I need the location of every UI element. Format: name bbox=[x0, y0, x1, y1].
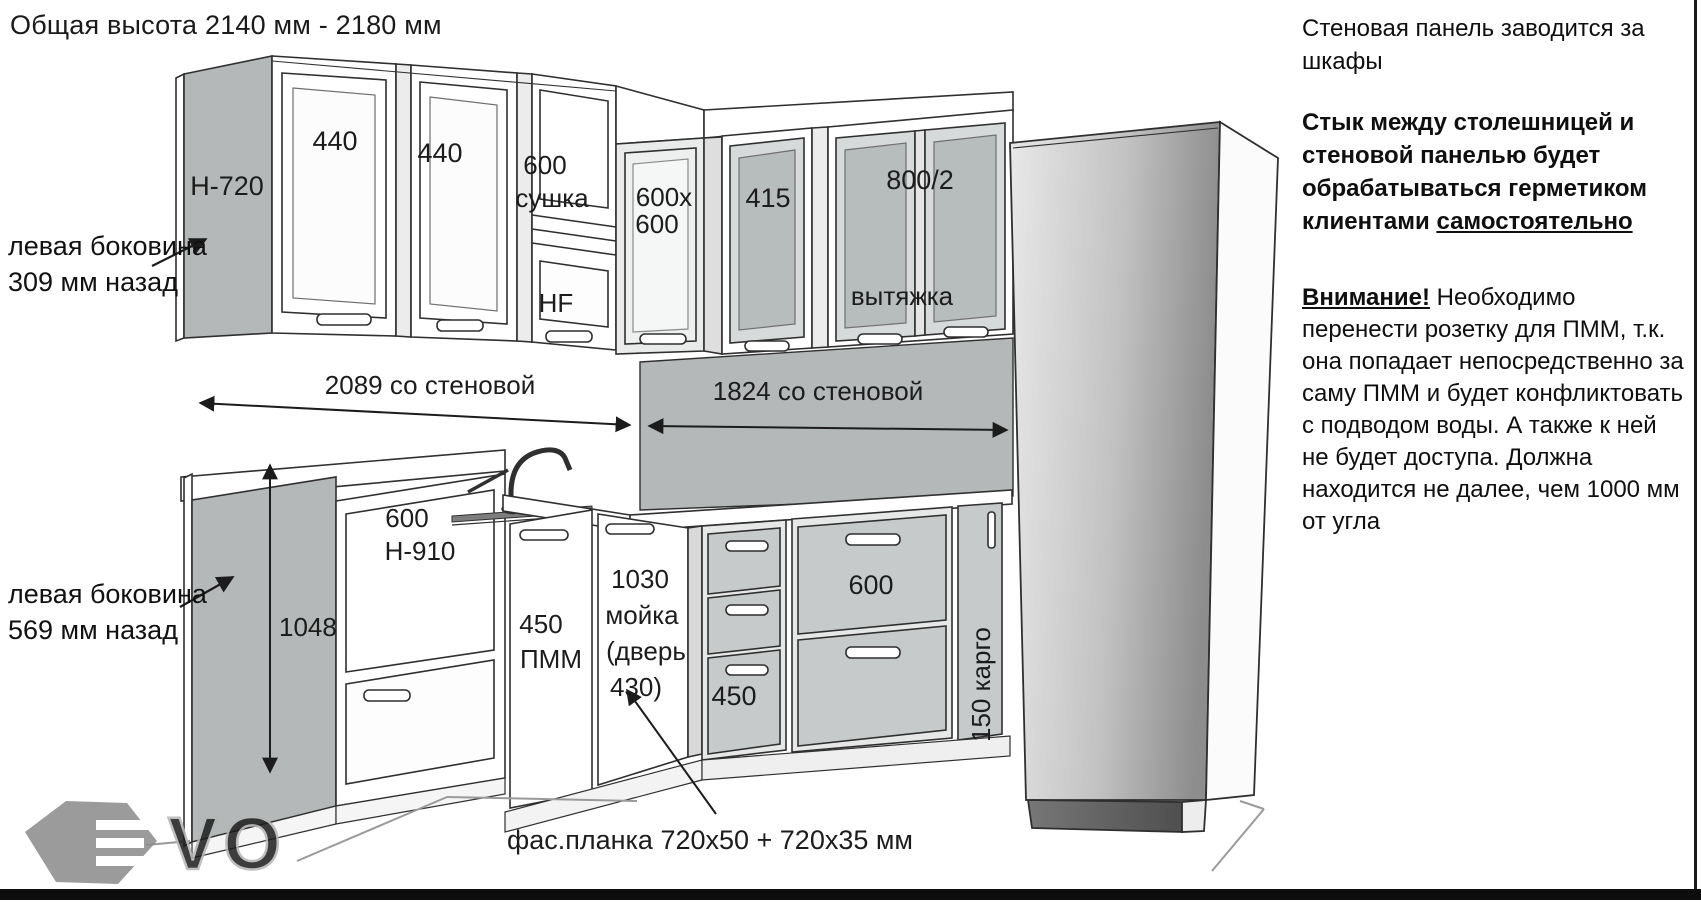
label-hood-cab: 800/2 bbox=[886, 165, 954, 195]
label-tall-size: 600 bbox=[385, 503, 428, 533]
label-hood: вытяжка bbox=[851, 281, 954, 311]
note-warning: Внимание! Необходимо перенести розетку д… bbox=[1302, 282, 1685, 538]
right-border-line bbox=[1694, 0, 1697, 889]
label-cab440-2: 440 bbox=[417, 138, 462, 168]
label-dryer-name: сушка bbox=[515, 183, 589, 213]
callout-side-309-line1: левая боковина bbox=[8, 228, 207, 264]
tall-cabinet bbox=[1010, 122, 1278, 871]
handle bbox=[640, 334, 686, 344]
handle bbox=[726, 605, 768, 615]
label-sink-4: 430) bbox=[610, 672, 662, 702]
label-cab440-1: 440 bbox=[312, 126, 357, 156]
logo-text: VO bbox=[168, 802, 287, 885]
label-corner-2: 600 bbox=[635, 209, 678, 239]
note-joint: Стык между столешницей и стеновой панель… bbox=[1302, 106, 1685, 238]
label-sink-3: (дверь bbox=[606, 636, 686, 666]
base-left-side-panel bbox=[192, 477, 336, 842]
note-warning-body: Необходимо перенести розетку для ПММ, т.… bbox=[1302, 284, 1684, 535]
handle bbox=[846, 647, 900, 658]
callout-side-569: левая боковина 569 мм назад bbox=[8, 576, 207, 648]
handle bbox=[726, 541, 768, 551]
label-dw-name: ПММ bbox=[520, 644, 582, 674]
label-cargo: 150 карго bbox=[966, 627, 996, 742]
label-dw-size: 450 bbox=[519, 609, 562, 639]
wall-panel bbox=[640, 338, 1013, 510]
label-dryer-door: HF bbox=[539, 288, 574, 318]
label-corner-1: 600х bbox=[636, 182, 692, 212]
handle bbox=[520, 530, 568, 540]
handle bbox=[988, 512, 995, 548]
handle bbox=[546, 331, 592, 342]
handle bbox=[858, 334, 902, 344]
tall-cabinet-plinth bbox=[1028, 800, 1182, 832]
callout-side-309: левая боковина 309 мм назад bbox=[8, 228, 207, 300]
notes-column: Стеновая панель заводится за шкафы Стык … bbox=[1302, 12, 1685, 538]
callout-side-569-line2: 569 мм назад bbox=[8, 612, 207, 648]
label-drw450: 450 bbox=[711, 681, 756, 711]
callout-side-309-line2: 309 мм назад bbox=[8, 264, 207, 300]
handle bbox=[437, 320, 483, 331]
dim-side-height: 1048 bbox=[279, 612, 337, 642]
note-joint-underlined: самостоятельно bbox=[1436, 208, 1632, 235]
label-facade-strip: фас.планка 720х50 + 720х35 мм bbox=[507, 825, 913, 855]
label-dryer-size: 600 bbox=[523, 150, 566, 180]
dim-right-run: 1824 со стеновой bbox=[713, 376, 923, 406]
bottom-bar bbox=[0, 889, 1701, 900]
label-tall-h: Н-910 bbox=[385, 536, 456, 566]
dim-left-run: 2089 со стеновой bbox=[325, 370, 535, 400]
label-sink-1: 1030 bbox=[611, 564, 669, 594]
label-sink-2: мойка bbox=[605, 600, 679, 630]
note-wall-panel: Стеновая панель заводится за шкафы bbox=[1302, 12, 1685, 78]
handle bbox=[317, 314, 371, 325]
handle bbox=[606, 524, 654, 534]
callout-side-569-line1: левая боковина bbox=[8, 576, 207, 612]
page-title: Общая высота 2140 мм - 2180 мм bbox=[10, 10, 442, 41]
label-drw600: 600 bbox=[848, 570, 893, 600]
upper-side-edge-strip bbox=[176, 74, 184, 341]
handle bbox=[364, 690, 410, 701]
note-warning-title: Внимание! bbox=[1302, 284, 1430, 311]
handle bbox=[846, 534, 900, 545]
label-cab415: 415 bbox=[745, 183, 790, 213]
handle bbox=[944, 327, 988, 337]
label-side-panel: Н-720 bbox=[190, 171, 264, 201]
evo-logo: VO bbox=[25, 801, 287, 885]
handle bbox=[726, 665, 768, 675]
corner-cornice bbox=[616, 86, 704, 144]
handle bbox=[745, 341, 789, 351]
kitchen-scheme-page: Н-720 440 440 600 сушка HF 600х 600 415 … bbox=[0, 0, 1701, 900]
